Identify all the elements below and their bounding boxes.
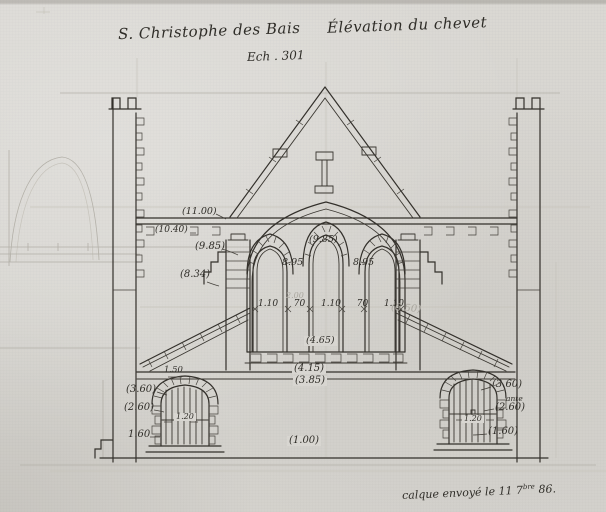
dim-sill-4-65: (4.65) (304, 336, 337, 346)
dim-plinth-1-00: (1.00) (287, 436, 321, 446)
dim-bay-width-1: 1.10 (258, 300, 278, 309)
dim-bay-widths-row: 1.10 70 1.10 70 1.10 (258, 300, 404, 309)
pinnacles (95, 98, 548, 462)
dim-height-11-00: (11.00) (182, 207, 217, 217)
pencil-dim-6-50: (6.50) (391, 303, 422, 315)
voussoir-ticks (113, 120, 540, 398)
dim-left-1-60: 1.60 (128, 430, 150, 440)
ink-detail (113, 118, 540, 444)
dim-right-1-60: (1.60) (488, 427, 518, 437)
dim-course-3-85: (3.85) (293, 376, 327, 386)
pencil-dim-2-00: 2.00 (286, 292, 304, 300)
dim-right-window-width: 1.20 (462, 415, 484, 423)
dim-pier-width-2: 70 (357, 300, 368, 309)
footer-note-sup: bre (523, 483, 535, 492)
dim-course-4-15: (4.15) (292, 364, 326, 374)
dim-height-9-85: (9.85) (195, 242, 225, 252)
footer-note-post: 86. (535, 482, 557, 496)
dim-right-3-60: (3.60) (492, 380, 522, 390)
dim-arch-center: (9.85) (309, 235, 338, 245)
dim-pier-width-1: 70 (294, 300, 305, 309)
scale-note: Ech . 301 (247, 49, 305, 63)
dim-left-3-60: (3.60) (126, 385, 156, 395)
ink-structure (95, 87, 548, 462)
dim-arch-left: 8.95 (282, 258, 303, 268)
paper-sheet: S. Christophe des Bais Élévation du chev… (0, 0, 606, 512)
dim-left-window-over: 1.50 (164, 366, 183, 375)
dim-right-2-60: (2.60) (495, 403, 525, 413)
dim-height-8-34: (8.34) (180, 270, 210, 280)
dim-left-2-60: (2.60) (124, 403, 154, 413)
crypt-windows (146, 370, 512, 452)
dim-height-10-40: (10.40) (155, 226, 188, 235)
dim-bay-width-2: 1.10 (321, 300, 341, 309)
dim-left-window-width: 1.20 (174, 413, 196, 421)
dim-arch-right: 8.95 (353, 258, 374, 268)
